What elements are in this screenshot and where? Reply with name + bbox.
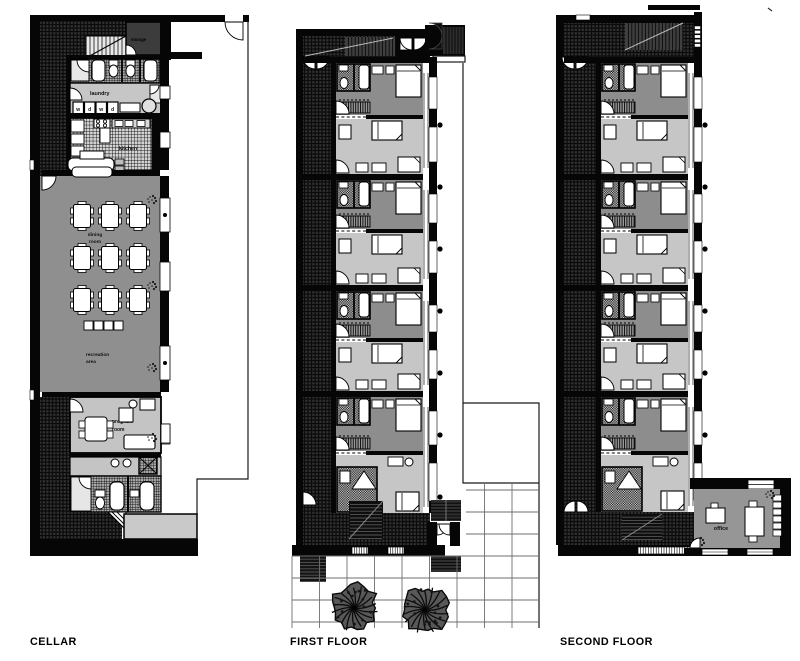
- svg-text:storage: storage: [131, 37, 147, 42]
- svg-text:laundry: laundry: [90, 91, 109, 97]
- svg-text:room: room: [112, 427, 125, 433]
- svg-text:area: area: [86, 359, 96, 365]
- svg-text:CELLAR: CELLAR: [30, 636, 77, 648]
- svg-text:FIRST FLOOR: FIRST FLOOR: [290, 636, 367, 648]
- svg-text:d: d: [111, 107, 114, 113]
- svg-text:dining: dining: [88, 232, 102, 238]
- svg-text:room: room: [89, 239, 101, 245]
- svg-text:d: d: [88, 107, 91, 113]
- svg-text:SECOND FLOOR: SECOND FLOOR: [560, 636, 653, 648]
- svg-text:w: w: [98, 107, 103, 113]
- svg-text:recreation: recreation: [86, 352, 109, 358]
- svg-text:office: office: [714, 526, 728, 532]
- svg-text:kitchen: kitchen: [119, 146, 137, 152]
- svg-text:w: w: [75, 107, 80, 113]
